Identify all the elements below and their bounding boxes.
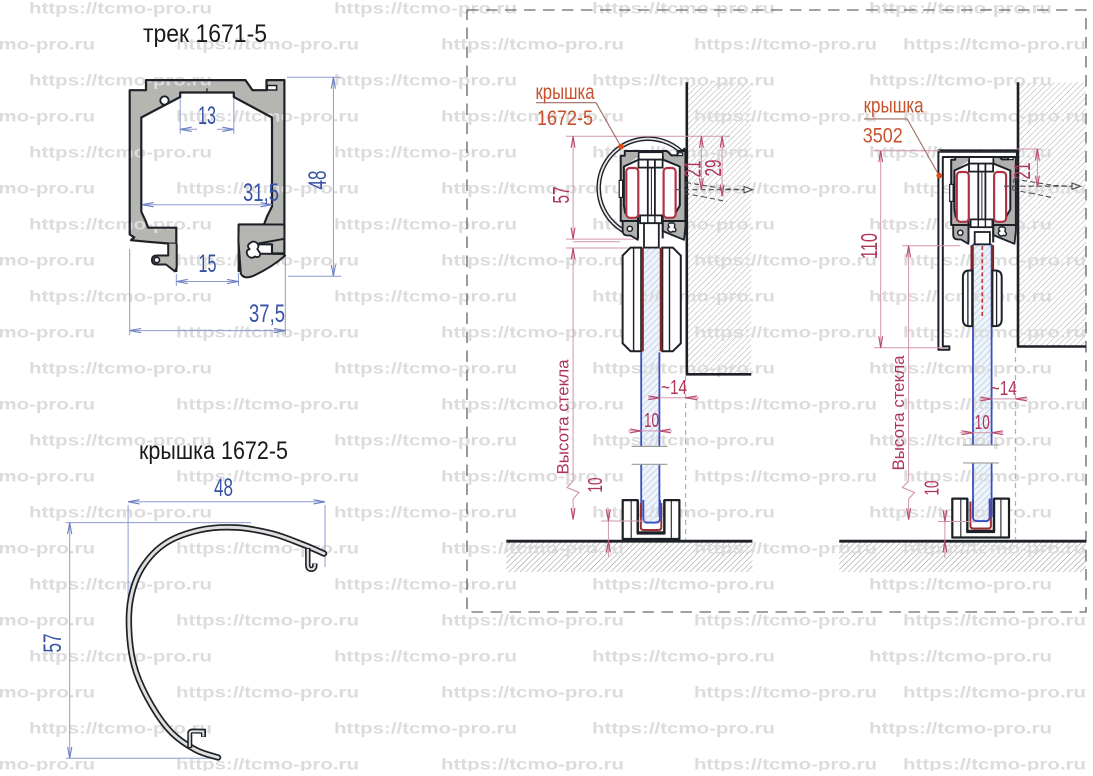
svg-text:https://tcmo-pro.ru: https://tcmo-pro.ru — [441, 324, 624, 341]
svg-text:https://tcmo-pro.ru: https://tcmo-pro.ru — [592, 576, 775, 593]
svg-text:https://tcmo-pro.ru: https://tcmo-pro.ru — [694, 756, 877, 771]
svg-text:48: 48 — [214, 474, 233, 502]
svg-text:https://tcmo-pro.ru: https://tcmo-pro.ru — [869, 720, 1052, 737]
svg-text:трек 1671-5: трек 1671-5 — [143, 20, 267, 48]
svg-text:https://tcmo-pro.ru: https://tcmo-pro.ru — [0, 324, 95, 341]
svg-text:https://tcmo-pro.ru: https://tcmo-pro.ru — [592, 288, 775, 305]
svg-text:https://tcmo-pro.ru: https://tcmo-pro.ru — [334, 576, 517, 593]
svg-text:https://tcmo-pro.ru: https://tcmo-pro.ru — [0, 468, 95, 485]
svg-text:https://tcmo-pro.ru: https://tcmo-pro.ru — [334, 504, 517, 521]
svg-text:https://tcmo-pro.ru: https://tcmo-pro.ru — [694, 108, 877, 125]
svg-text:57: 57 — [548, 187, 574, 204]
svg-text:10: 10 — [975, 412, 990, 434]
svg-text:https://tcmo-pro.ru: https://tcmo-pro.ru — [441, 108, 624, 125]
svg-text:https://tcmo-pro.ru: https://tcmo-pro.ru — [694, 324, 877, 341]
svg-text:https://tcmo-pro.ru: https://tcmo-pro.ru — [869, 288, 1052, 305]
svg-text:https://tcmo-pro.ru: https://tcmo-pro.ru — [334, 432, 517, 449]
svg-text:https://tcmo-pro.ru: https://tcmo-pro.ru — [441, 252, 624, 269]
svg-text:https://tcmo-pro.ru: https://tcmo-pro.ru — [441, 36, 624, 53]
svg-text:https://tcmo-pro.ru: https://tcmo-pro.ru — [903, 612, 1086, 629]
svg-text:https://tcmo-pro.ru: https://tcmo-pro.ru — [334, 144, 517, 161]
svg-text:https://tcmo-pro.ru: https://tcmo-pro.ru — [441, 396, 624, 413]
svg-text:https://tcmo-pro.ru: https://tcmo-pro.ru — [29, 144, 212, 161]
svg-text:https://tcmo-pro.ru: https://tcmo-pro.ru — [334, 216, 517, 233]
svg-text:https://tcmo-pro.ru: https://tcmo-pro.ru — [903, 252, 1086, 269]
svg-text:https://tcmo-pro.ru: https://tcmo-pro.ru — [0, 684, 95, 701]
svg-text:3502: 3502 — [863, 125, 903, 148]
svg-text:https://tcmo-pro.ru: https://tcmo-pro.ru — [334, 288, 517, 305]
svg-text:https://tcmo-pro.ru: https://tcmo-pro.ru — [441, 756, 624, 771]
svg-text:48: 48 — [304, 171, 332, 190]
svg-text:https://tcmo-pro.ru: https://tcmo-pro.ru — [334, 72, 517, 89]
svg-text:крышка 1672-5: крышка 1672-5 — [139, 437, 288, 465]
svg-text:https://tcmo-pro.ru: https://tcmo-pro.ru — [592, 720, 775, 737]
svg-text:https://tcmo-pro.ru: https://tcmo-pro.ru — [29, 288, 212, 305]
svg-text:~14: ~14 — [661, 377, 687, 399]
svg-text:https://tcmo-pro.ru: https://tcmo-pro.ru — [29, 576, 212, 593]
svg-text:https://tcmo-pro.ru: https://tcmo-pro.ru — [29, 216, 212, 233]
svg-text:https://tcmo-pro.ru: https://tcmo-pro.ru — [334, 648, 517, 665]
svg-text:https://tcmo-pro.ru: https://tcmo-pro.ru — [694, 252, 877, 269]
svg-text:https://tcmo-pro.ru: https://tcmo-pro.ru — [0, 108, 95, 125]
svg-text:https://tcmo-pro.ru: https://tcmo-pro.ru — [903, 684, 1086, 701]
svg-text:https://tcmo-pro.ru: https://tcmo-pro.ru — [0, 540, 95, 557]
svg-text:крышка: крышка — [536, 81, 595, 104]
svg-text:https://tcmo-pro.ru: https://tcmo-pro.ru — [903, 540, 1086, 557]
svg-text:1672-5: 1672-5 — [537, 107, 593, 130]
svg-text:https://tcmo-pro.ru: https://tcmo-pro.ru — [176, 612, 359, 629]
svg-text:https://tcmo-pro.ru: https://tcmo-pro.ru — [869, 576, 1052, 593]
svg-text:https://tcmo-pro.ru: https://tcmo-pro.ru — [334, 360, 517, 377]
svg-text:37,5: 37,5 — [249, 300, 285, 328]
svg-text:29: 29 — [700, 160, 726, 177]
svg-text:https://tcmo-pro.ru: https://tcmo-pro.ru — [903, 756, 1086, 771]
svg-text:110: 110 — [856, 233, 882, 259]
svg-text:https://tcmo-pro.ru: https://tcmo-pro.ru — [592, 648, 775, 665]
svg-text:https://tcmo-pro.ru: https://tcmo-pro.ru — [694, 684, 877, 701]
svg-text:https://tcmo-pro.ru: https://tcmo-pro.ru — [441, 612, 624, 629]
svg-text:https://tcmo-pro.ru: https://tcmo-pro.ru — [592, 432, 775, 449]
svg-text:10: 10 — [585, 478, 607, 493]
svg-text:https://tcmo-pro.ru: https://tcmo-pro.ru — [694, 36, 877, 53]
svg-text:https://tcmo-pro.ru: https://tcmo-pro.ru — [694, 540, 877, 557]
svg-text:https://tcmo-pro.ru: https://tcmo-pro.ru — [694, 468, 877, 485]
svg-text:https://tcmo-pro.ru: https://tcmo-pro.ru — [334, 0, 517, 17]
svg-text:https://tcmo-pro.ru: https://tcmo-pro.ru — [869, 72, 1052, 89]
svg-text:https://tcmo-pro.ru: https://tcmo-pro.ru — [869, 0, 1052, 17]
svg-text:https://tcmo-pro.ru: https://tcmo-pro.ru — [441, 684, 624, 701]
svg-text:Высота стекла: Высота стекла — [889, 355, 908, 471]
svg-text:https://tcmo-pro.ru: https://tcmo-pro.ru — [176, 396, 359, 413]
svg-text:Высота стекла: Высота стекла — [554, 359, 573, 475]
svg-text:https://tcmo-pro.ru: https://tcmo-pro.ru — [592, 0, 775, 17]
svg-text:https://tcmo-pro.ru: https://tcmo-pro.ru — [176, 684, 359, 701]
svg-text:https://tcmo-pro.ru: https://tcmo-pro.ru — [694, 396, 877, 413]
svg-text:15: 15 — [199, 250, 217, 278]
svg-text:57: 57 — [39, 634, 67, 653]
svg-text:10: 10 — [644, 410, 659, 432]
svg-text:13: 13 — [198, 102, 216, 130]
svg-text:https://tcmo-pro.ru: https://tcmo-pro.ru — [29, 720, 212, 737]
svg-text:21: 21 — [1009, 163, 1035, 180]
svg-text:https://tcmo-pro.ru: https://tcmo-pro.ru — [334, 720, 517, 737]
svg-text:https://tcmo-pro.ru: https://tcmo-pro.ru — [0, 612, 95, 629]
svg-text:~14: ~14 — [991, 378, 1017, 400]
svg-text:https://tcmo-pro.ru: https://tcmo-pro.ru — [29, 504, 212, 521]
svg-text:https://tcmo-pro.ru: https://tcmo-pro.ru — [441, 540, 624, 557]
svg-text:https://tcmo-pro.ru: https://tcmo-pro.ru — [869, 648, 1052, 665]
svg-text:https://tcmo-pro.ru: https://tcmo-pro.ru — [694, 612, 877, 629]
svg-text:https://tcmo-pro.ru: https://tcmo-pro.ru — [0, 252, 95, 269]
svg-text:https://tcmo-pro.ru: https://tcmo-pro.ru — [29, 360, 212, 377]
svg-text:https://tcmo-pro.ru: https://tcmo-pro.ru — [0, 180, 95, 197]
svg-text:31,5: 31,5 — [243, 179, 279, 207]
svg-text:https://tcmo-pro.ru: https://tcmo-pro.ru — [0, 396, 95, 413]
svg-text:https://tcmo-pro.ru: https://tcmo-pro.ru — [903, 36, 1086, 53]
svg-text:https://tcmo-pro.ru: https://tcmo-pro.ru — [176, 468, 359, 485]
svg-text:https://tcmo-pro.ru: https://tcmo-pro.ru — [0, 36, 95, 53]
svg-text:https://tcmo-pro.ru: https://tcmo-pro.ru — [29, 0, 212, 17]
svg-text:https://tcmo-pro.ru: https://tcmo-pro.ru — [903, 108, 1086, 125]
svg-text:10: 10 — [922, 481, 944, 496]
svg-text:https://tcmo-pro.ru: https://tcmo-pro.ru — [176, 540, 359, 557]
svg-text:крышка: крышка — [864, 95, 924, 118]
svg-text:https://tcmo-pro.ru: https://tcmo-pro.ru — [592, 504, 775, 521]
svg-text:https://tcmo-pro.ru: https://tcmo-pro.ru — [592, 72, 775, 89]
